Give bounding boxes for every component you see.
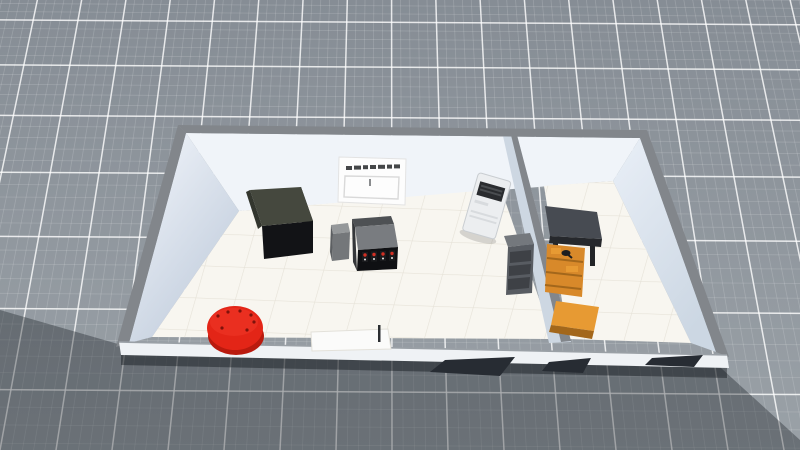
gray-drawer-cabinet bbox=[504, 233, 534, 295]
3d-scene-viewport[interactable] bbox=[0, 0, 800, 450]
scene-canvas bbox=[0, 0, 800, 450]
poster-mark bbox=[369, 179, 371, 186]
small-gray-cabinet bbox=[330, 223, 350, 261]
whiteboard-poster bbox=[338, 157, 406, 205]
kitchen-stove bbox=[352, 216, 398, 271]
small-stick-object bbox=[378, 325, 381, 342]
two-room-building bbox=[116, 125, 729, 357]
red-round-stool bbox=[207, 306, 264, 355]
